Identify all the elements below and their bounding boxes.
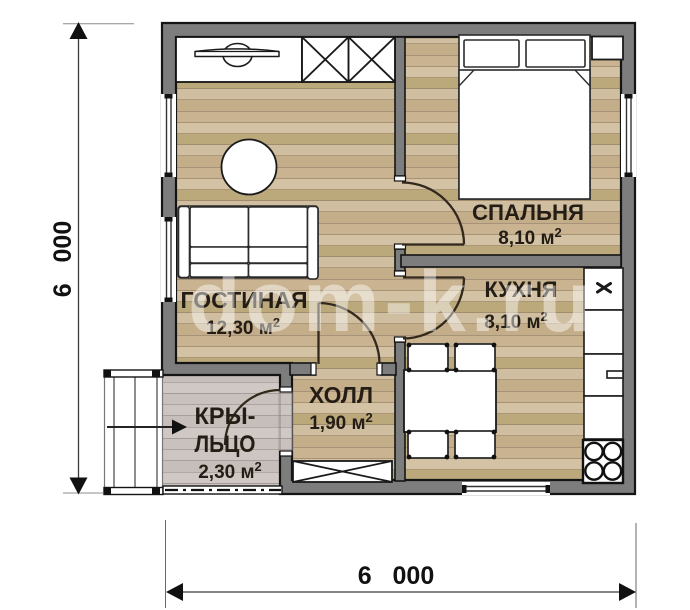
svg-text:КРЫ-: КРЫ-	[195, 403, 256, 430]
svg-text:8,10 м2: 8,10 м2	[498, 225, 562, 249]
svg-text:СПАЛЬНЯ: СПАЛЬНЯ	[472, 200, 584, 225]
svg-text:ХОЛЛ: ХОЛЛ	[309, 382, 373, 408]
svg-text:2,30 м2: 2,30 м2	[198, 459, 262, 483]
svg-text:1,90 м2: 1,90 м2	[309, 410, 373, 434]
svg-text:ЛЬЦО: ЛЬЦО	[195, 431, 256, 458]
svg-text:6 000: 6 000	[49, 221, 77, 297]
svg-text:dom-k.ru: dom-k.ru	[188, 254, 596, 350]
svg-text:6 000: 6 000	[358, 562, 434, 590]
